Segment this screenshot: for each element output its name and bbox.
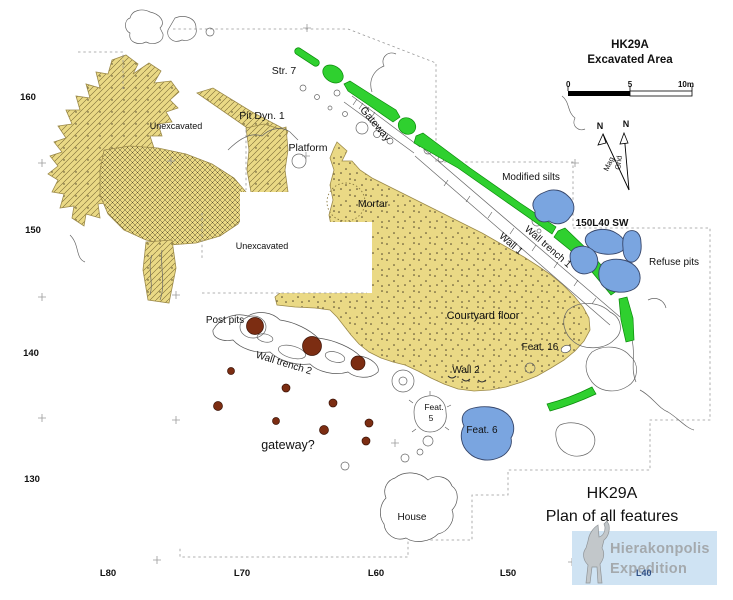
post-pit bbox=[351, 356, 365, 370]
house-outline bbox=[380, 473, 457, 542]
col-label-l80: L80 bbox=[100, 568, 116, 579]
wall-arc-south bbox=[547, 387, 596, 411]
contour bbox=[640, 390, 694, 430]
label-platform: Platform bbox=[288, 142, 327, 154]
map-header: HK29A Excavated Area 0 5 10m N N Mag Gri… bbox=[566, 39, 694, 190]
col-label-l50: L50 bbox=[500, 568, 516, 579]
col-label-l60: L60 bbox=[368, 568, 384, 579]
logo-text-line1: Hierakonpolis bbox=[610, 541, 710, 557]
label-150l40-sw: 150L40 SW bbox=[576, 218, 629, 229]
plan-title-line1: HK29A bbox=[587, 485, 638, 502]
post-pit bbox=[329, 399, 337, 407]
post-pit bbox=[228, 368, 235, 375]
north-block-area bbox=[246, 124, 288, 194]
north-arrow-mag-head bbox=[598, 134, 606, 145]
row-label-130: 130 bbox=[24, 474, 40, 485]
post-pit bbox=[365, 419, 373, 427]
scale-tick-10m: 10m bbox=[678, 80, 694, 89]
contour bbox=[328, 106, 332, 110]
north-arrow-grid-head bbox=[620, 133, 628, 144]
post-pit bbox=[282, 384, 290, 392]
label-feat5-line1: Feat. bbox=[424, 402, 443, 412]
label-feat6: Feat. 6 bbox=[466, 425, 498, 436]
post-pit bbox=[247, 318, 264, 335]
grid-label: Grid bbox=[613, 155, 624, 170]
modified-silts-blob bbox=[533, 190, 574, 224]
contour bbox=[556, 423, 595, 456]
contour bbox=[168, 16, 197, 41]
expedition-logo: Hierakonpolis Expedition L40 bbox=[572, 521, 717, 585]
contour bbox=[300, 85, 306, 91]
scale-tick-0: 0 bbox=[566, 80, 571, 89]
contour bbox=[371, 53, 396, 92]
row-label-140: 140 bbox=[23, 348, 39, 359]
scale-bar-white bbox=[630, 91, 692, 96]
label-courtyard-floor: Courtyard floor bbox=[447, 310, 520, 322]
north-arrows: N N Mag Grid bbox=[597, 119, 630, 190]
col-label-l70: L70 bbox=[234, 568, 250, 579]
north-n-grid: N bbox=[623, 119, 630, 129]
contour bbox=[206, 28, 214, 36]
scale-bar: 0 5 10m bbox=[566, 80, 694, 96]
header-title-line1: HK29A bbox=[611, 39, 649, 51]
row-label-160: 160 bbox=[20, 92, 36, 103]
contour bbox=[70, 235, 85, 262]
post-pit bbox=[214, 402, 223, 411]
label-unexcavated-1: Unexcavated bbox=[150, 121, 203, 131]
label-refuse-pits: Refuse pits bbox=[649, 257, 699, 268]
contour bbox=[586, 347, 637, 391]
label-feat5-line2: 5 bbox=[429, 413, 434, 423]
scale-ticks bbox=[568, 86, 692, 91]
gateway-blob bbox=[319, 61, 346, 86]
label-wall2: Wall 2 bbox=[452, 365, 480, 376]
scale-bar-black bbox=[568, 91, 630, 96]
wall-segment bbox=[293, 46, 320, 67]
contour bbox=[562, 96, 585, 130]
posthole-ring-inner bbox=[399, 377, 407, 385]
col-label-l40: L40 bbox=[636, 568, 652, 578]
refuse-pit bbox=[623, 231, 641, 263]
contour bbox=[423, 436, 433, 446]
contour bbox=[126, 10, 164, 44]
header-title-line2: Excavated Area bbox=[587, 54, 673, 66]
site-plan-svg: Str. 7 Pit Dyn. 1 Unexcavated Gateway Pl… bbox=[0, 0, 733, 600]
post-pit bbox=[320, 426, 329, 435]
label-modified-silts: Modified silts bbox=[502, 172, 560, 183]
post-pit bbox=[362, 437, 370, 445]
refuse-pit bbox=[570, 246, 598, 274]
site-plan-page: Str. 7 Pit Dyn. 1 Unexcavated Gateway Pl… bbox=[0, 0, 733, 600]
label-unexcavated-2: Unexcavated bbox=[236, 241, 289, 251]
row-label-150: 150 bbox=[25, 225, 41, 236]
refuse-pit bbox=[599, 259, 640, 292]
post-pit bbox=[303, 337, 322, 356]
label-mortar: Mortar bbox=[358, 198, 389, 210]
label-house: House bbox=[398, 512, 427, 523]
label-str7: Str. 7 bbox=[272, 65, 297, 77]
post-pit bbox=[273, 418, 280, 425]
plan-title-block: HK29A Plan of all features bbox=[546, 485, 679, 525]
plan-title-line2: Plan of all features bbox=[546, 508, 679, 525]
contour bbox=[401, 454, 409, 462]
contour bbox=[417, 449, 423, 455]
contour bbox=[343, 112, 348, 117]
contour bbox=[356, 122, 368, 134]
label-gateway-question: gateway? bbox=[261, 438, 315, 452]
label-post-pits: Post pits bbox=[206, 315, 244, 326]
north-n-mag: N bbox=[597, 121, 604, 131]
contour bbox=[315, 95, 320, 100]
contour bbox=[648, 298, 666, 308]
posthole-ring bbox=[392, 370, 414, 392]
label-feat16: Feat. 16 bbox=[522, 342, 559, 353]
label-pit-dyn1: Pit Dyn. 1 bbox=[239, 110, 285, 122]
south-strip-area bbox=[143, 240, 176, 303]
contour bbox=[341, 462, 349, 470]
contour bbox=[334, 90, 340, 96]
wall-strip-east bbox=[619, 297, 634, 342]
